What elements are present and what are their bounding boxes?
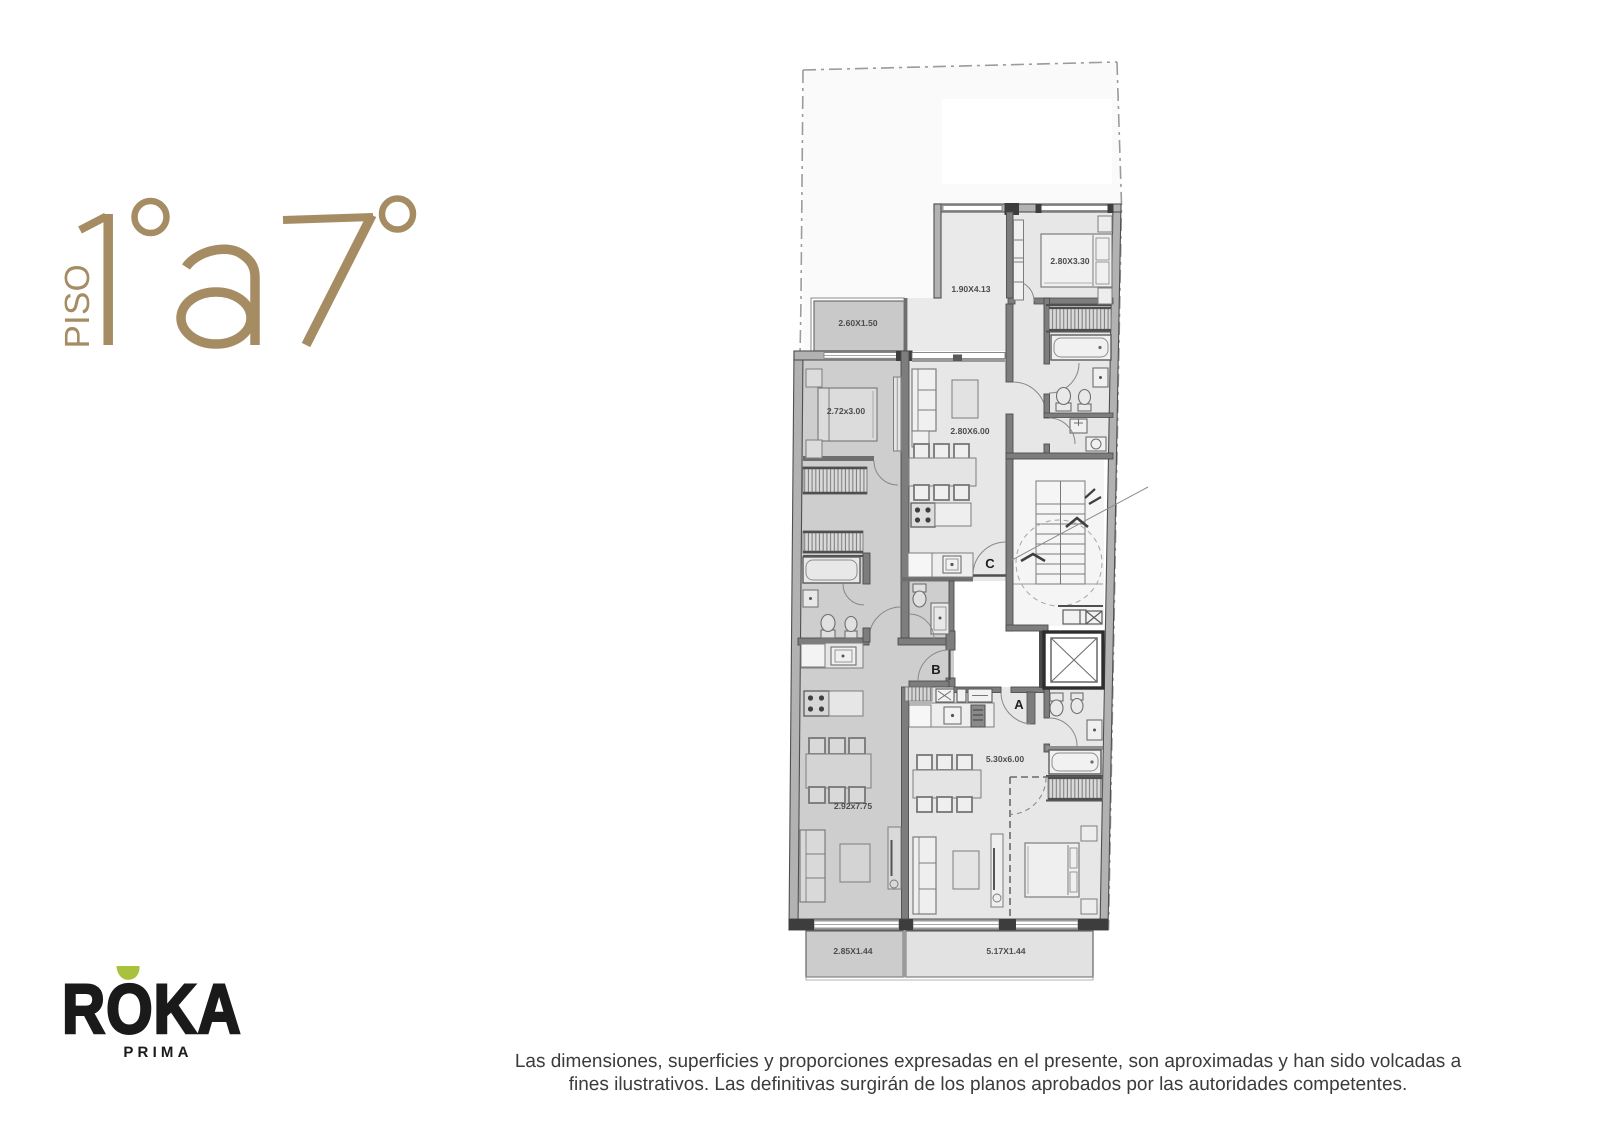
svg-text:2.80X3.30: 2.80X3.30 <box>1050 256 1089 266</box>
svg-text:ROKA: ROKA <box>62 970 242 1048</box>
svg-text:5.17X1.44: 5.17X1.44 <box>986 946 1025 956</box>
svg-text:2.92x7.75: 2.92x7.75 <box>834 801 872 811</box>
svg-text:fines ilustrativos. Las defini: fines ilustrativos. Las definitivas surg… <box>569 1074 1408 1095</box>
svg-text:1.90X4.13: 1.90X4.13 <box>951 284 990 294</box>
svg-text:Las dimensiones, superficies y: Las dimensiones, superficies y proporcio… <box>515 1051 1462 1072</box>
svg-text:2.85X1.44: 2.85X1.44 <box>833 946 872 956</box>
svg-text:2.60X1.50: 2.60X1.50 <box>838 318 877 328</box>
svg-text:2.80X6.00: 2.80X6.00 <box>950 426 989 436</box>
svg-text:PRIMA: PRIMA <box>123 1044 192 1061</box>
svg-text:PISO: PISO <box>58 264 97 348</box>
svg-text:A: A <box>1014 697 1024 712</box>
svg-text:C: C <box>985 556 995 571</box>
svg-text:5.30x6.00: 5.30x6.00 <box>986 754 1024 764</box>
svg-text:2.72x3.00: 2.72x3.00 <box>827 406 865 416</box>
svg-text:B: B <box>931 662 940 677</box>
